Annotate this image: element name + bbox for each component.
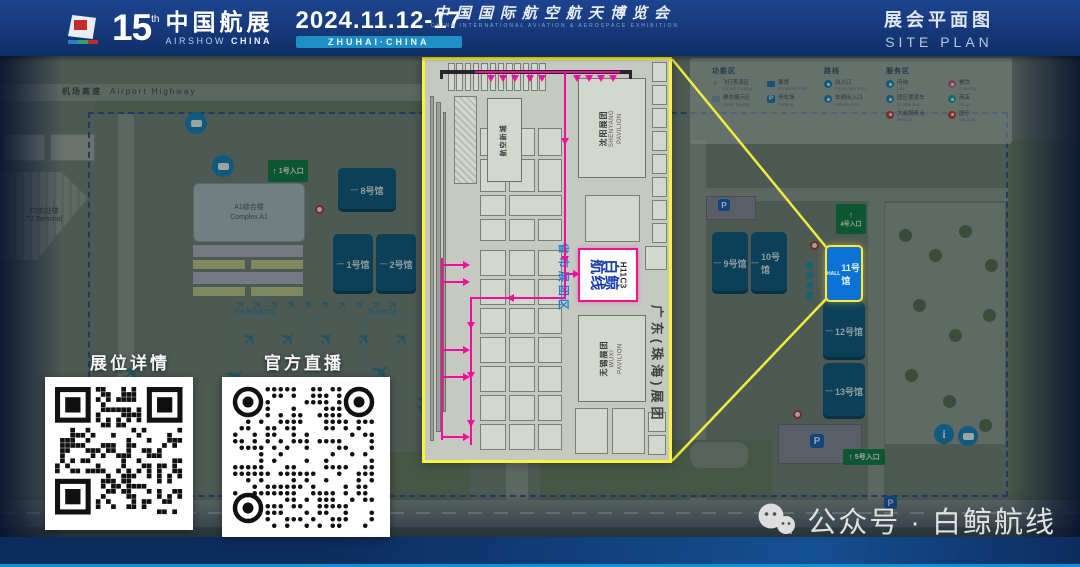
gate-strip bbox=[193, 272, 303, 284]
legend-item-en: Service bbox=[897, 117, 925, 122]
tree-icon bbox=[985, 259, 998, 272]
watermark-text: 公众号 · 白鲸航线 bbox=[807, 499, 1056, 541]
route-arrow-right bbox=[573, 270, 580, 278]
booth-box bbox=[652, 200, 667, 220]
entrance-label: 4号入口 bbox=[840, 222, 861, 228]
zone-label-guangdong-zhuhai: 广东(珠海)展团 bbox=[646, 270, 666, 458]
legend-item-en: Shop bbox=[959, 102, 970, 107]
booth-box bbox=[480, 250, 506, 276]
hall-label: 11号馆 bbox=[841, 261, 861, 287]
booth-box bbox=[538, 159, 562, 192]
legend-item-cn: 停车场 bbox=[778, 95, 795, 101]
hall-block-12号馆: 一12号馆 bbox=[823, 302, 865, 360]
plane-icon: ✈ bbox=[712, 80, 719, 88]
legend-item: 车辆出入口Vehicle Entr. bbox=[824, 95, 886, 106]
booth-box bbox=[509, 424, 535, 450]
parking-icon: P bbox=[810, 434, 824, 448]
venue-badge: ZHUHAI·CHINA bbox=[296, 36, 462, 48]
route-line bbox=[475, 71, 620, 73]
arrow-up-icon: ↑ bbox=[272, 167, 277, 176]
route-arrow-down bbox=[561, 256, 569, 263]
qr-label-live-stream: 官方直播 bbox=[264, 349, 344, 374]
hall-dash-icon: 一 bbox=[713, 258, 721, 269]
hall-dash-icon: 一 bbox=[825, 386, 833, 397]
route-arrow-down bbox=[573, 75, 581, 82]
booth-box bbox=[585, 195, 640, 242]
entrance-badge-1号入口: ↑1号入口 bbox=[268, 160, 308, 182]
hall-label: 2号馆 bbox=[389, 258, 412, 271]
route-arrow-right bbox=[463, 433, 470, 441]
t2-terminal-label-cn: T2航站楼 bbox=[29, 208, 58, 215]
route-arrow-down bbox=[499, 75, 507, 82]
route-arrow-down bbox=[538, 75, 546, 82]
legend-item-en: Passenger Entr. bbox=[835, 86, 867, 91]
airshow-title-en2: CHINA bbox=[231, 36, 272, 46]
booth-box bbox=[480, 279, 506, 305]
circle-icon bbox=[886, 95, 894, 103]
site-plan-title-en: SITE PLAN bbox=[884, 34, 994, 50]
gate-label-strip bbox=[251, 287, 303, 296]
parking-icon: P bbox=[767, 95, 775, 103]
tree-icon bbox=[959, 225, 972, 238]
booth-box bbox=[652, 223, 667, 243]
hall-label: 1号馆 bbox=[346, 258, 369, 271]
square-icon bbox=[712, 96, 720, 102]
booth-box bbox=[652, 85, 667, 105]
route-line bbox=[441, 376, 465, 378]
route-arrow-down bbox=[585, 75, 593, 82]
legend-item: ✈飞行表演区Aircraft Display bbox=[712, 80, 761, 91]
booth-aviation-new-town: 航空新城 bbox=[487, 98, 522, 182]
site-plan-title-cn: 展会平面图 bbox=[884, 6, 994, 32]
gate-strip bbox=[193, 245, 303, 257]
legend-item: 大会服务点Service bbox=[886, 111, 942, 122]
route-arrow-down bbox=[609, 75, 617, 82]
booth-box bbox=[652, 131, 667, 151]
footer-banner-cn: 中国国际航空航天博览会 bbox=[431, 2, 679, 23]
tree-icon bbox=[979, 419, 992, 432]
legend-group-服务区: 服务区问询Info餐饮Catering园区摆渡车Shuttle Bus商店Sho… bbox=[886, 66, 1004, 122]
route-line bbox=[441, 436, 465, 438]
hall-block-1号馆: 一1号馆 bbox=[333, 234, 373, 294]
legend-item-cn: 园区摆渡车 bbox=[897, 95, 925, 101]
info-icon: i bbox=[934, 424, 954, 444]
booth-box bbox=[612, 408, 645, 454]
booth-box bbox=[480, 219, 506, 241]
legend-item-en: Shuttle Bus bbox=[897, 102, 925, 107]
facility-marker bbox=[806, 292, 813, 299]
route-arrow-down bbox=[467, 322, 475, 329]
tree-icon bbox=[913, 299, 926, 312]
booth-box bbox=[509, 366, 535, 392]
circle-icon bbox=[948, 95, 956, 103]
t2-terminal: T2航站楼 T2 Terminal bbox=[0, 172, 88, 260]
route-line bbox=[441, 281, 465, 283]
tree-icon bbox=[943, 395, 956, 408]
tree-icon bbox=[929, 249, 942, 262]
booth-highlight-whale-route: H11C3 白鲸 航线 bbox=[578, 248, 638, 302]
legend-item-en: Info bbox=[897, 86, 908, 91]
circle-icon bbox=[886, 111, 894, 119]
route-arrow-right bbox=[463, 278, 470, 286]
t2-terminal-label-en: T2 Terminal bbox=[26, 216, 62, 223]
legend-group-title: 服务区 bbox=[886, 66, 1004, 76]
legend-item-cn: 静态展示区 bbox=[723, 95, 751, 101]
circle-icon bbox=[948, 111, 956, 119]
gate-label-strip bbox=[251, 260, 303, 269]
hall-dash-icon: 一 bbox=[350, 185, 358, 196]
legend-item-en: Exhibition Hall bbox=[778, 86, 807, 91]
circle-icon bbox=[824, 95, 832, 103]
legend-item-en: Vehicle Entr. bbox=[835, 102, 863, 107]
legend-item-en: Static Display bbox=[723, 102, 751, 107]
legend-item: 出入口Passenger Entr. bbox=[824, 80, 886, 91]
airport-highway-label: 机场高速Airport Highway bbox=[62, 86, 196, 97]
legend-item-en: Medical bbox=[959, 117, 975, 122]
hall-block-10号馆: 一10号馆 bbox=[751, 232, 787, 294]
booth-box bbox=[538, 337, 562, 363]
booth-box bbox=[652, 177, 667, 197]
booth-box bbox=[538, 395, 562, 421]
qr-label-booth-details: 展位详情 bbox=[90, 349, 170, 374]
square-icon bbox=[767, 81, 775, 87]
legend-item: 静态展示区Static Display bbox=[712, 95, 761, 106]
route-arrow-down bbox=[511, 75, 519, 82]
legend-group-功能区: 功能区✈飞行表演区Aircraft Display展馆Exhibition Ha… bbox=[712, 66, 816, 107]
entrance-label: 5号入口 bbox=[855, 454, 880, 461]
edition-number: 15 th bbox=[112, 11, 160, 44]
booth-box bbox=[652, 108, 667, 128]
park-area bbox=[884, 202, 1006, 445]
hall-label: 12号馆 bbox=[835, 325, 863, 338]
route-arrow-down bbox=[526, 75, 534, 82]
hall-block-11号馆: HALL11号馆 bbox=[825, 245, 863, 302]
service-point-icon bbox=[793, 410, 802, 419]
footer-banner: 中国国际航空航天博览会 CHINA INTERNATIONAL AVIATION… bbox=[431, 2, 679, 29]
wuxi-label-cn: 无锡展团 bbox=[600, 341, 610, 377]
tree-icon bbox=[899, 229, 912, 242]
tree-icon bbox=[949, 329, 962, 342]
complex-a1-label-cn: A1综合楼 bbox=[234, 204, 264, 211]
service-point-icon bbox=[810, 241, 819, 250]
booth-box bbox=[480, 366, 506, 392]
hall-dash-icon: 一 bbox=[336, 259, 344, 270]
entrance-label: 1号入口 bbox=[279, 168, 304, 175]
gate-label-strip bbox=[193, 287, 245, 296]
hall11-detail-inset: 沈阳展团 SHENYANG PAVILION 航空新城 无锡展团 WUXI PA… bbox=[422, 57, 672, 463]
lawn bbox=[1008, 140, 1080, 500]
booth-wuxi-pavilion: 无锡展团 WUXI PAVILION bbox=[578, 315, 646, 402]
hall-dash-icon: 一 bbox=[751, 258, 759, 269]
booth-box bbox=[480, 195, 506, 216]
route-line bbox=[564, 73, 566, 299]
legend-item: 问询Info bbox=[886, 80, 942, 91]
legend-item: 餐饮Catering bbox=[948, 80, 1004, 91]
legend-item: 医疗Medical bbox=[948, 111, 1004, 122]
bus-glyph bbox=[191, 120, 202, 127]
booth-shenyang-pavilion: 沈阳展团 SHENYANG PAVILION bbox=[578, 78, 646, 178]
legend-item-cn: 车辆出入口 bbox=[835, 95, 863, 101]
wechat-icon bbox=[756, 502, 798, 538]
parking-icon: P bbox=[718, 199, 730, 211]
arrow-up-icon: ↑ bbox=[848, 453, 853, 462]
route-arrow-down bbox=[487, 75, 495, 82]
booth-box bbox=[645, 246, 667, 270]
booth-box bbox=[448, 63, 455, 91]
airshow-title: 中国航展 AIRSHOW CHINA bbox=[166, 11, 274, 46]
airshow-logo-icon bbox=[66, 9, 102, 47]
legend-item: 园区摆渡车Shuttle Bus bbox=[886, 95, 942, 106]
route-line bbox=[470, 297, 566, 299]
booth-box bbox=[575, 408, 608, 454]
circle-icon bbox=[886, 80, 894, 88]
footer-banner-en: CHINA INTERNATIONAL AVIATION & AEROSPACE… bbox=[431, 23, 679, 29]
route-arrow-right bbox=[463, 261, 470, 269]
wuxi-label-en1: WUXI bbox=[610, 341, 618, 377]
hall-block-13号馆: 一13号馆 bbox=[823, 363, 865, 419]
legend-group-title: 功能区 bbox=[712, 66, 816, 76]
booth-box bbox=[538, 366, 562, 392]
legend-item: P停车场Parking bbox=[767, 95, 816, 106]
hall-prefix: HALL bbox=[827, 271, 840, 277]
legend-item: 展馆Exhibition Hall bbox=[767, 80, 816, 91]
legend-group-title: 路线 bbox=[824, 66, 886, 76]
tree-icon bbox=[905, 369, 918, 382]
complex-a1-building: A1综合楼 Complex A1 bbox=[193, 183, 305, 242]
booth-box bbox=[509, 395, 535, 421]
booth-box bbox=[652, 62, 667, 82]
airshow-title-en1: AIRSHOW bbox=[166, 36, 227, 46]
booth-box bbox=[480, 337, 506, 363]
site-plan-title: 展会平面图 SITE PLAN bbox=[884, 6, 994, 50]
service-point-icon bbox=[315, 205, 324, 214]
booth-box bbox=[480, 308, 506, 334]
hall-dash-icon: 一 bbox=[825, 326, 833, 337]
shenyang-label-cn: 沈阳展团 bbox=[599, 109, 609, 146]
booth-box bbox=[480, 395, 506, 421]
zone-label-provincial: 省市展团区 bbox=[553, 228, 571, 328]
booth-box bbox=[509, 219, 535, 241]
booth-box bbox=[509, 195, 562, 216]
entrance-badge-4号入口: ↑4号入口 bbox=[836, 204, 866, 234]
booth-box bbox=[509, 308, 535, 334]
legend-item: 商店Shop bbox=[948, 95, 1004, 106]
airshow-title-cn: 中国航展 bbox=[166, 11, 274, 34]
hall-label: 9号馆 bbox=[723, 257, 746, 270]
booth-box bbox=[538, 128, 562, 156]
facility-marker bbox=[806, 262, 813, 269]
booth-box bbox=[454, 96, 477, 184]
gate-label-strip bbox=[193, 260, 245, 269]
circle-icon bbox=[824, 80, 832, 88]
footer-bar bbox=[0, 537, 1080, 567]
bus-glyph bbox=[218, 163, 229, 170]
building bbox=[3, 134, 45, 161]
hall-block-2号馆: 一2号馆 bbox=[376, 234, 416, 294]
airshow-site-plan-poster: 机场高速Airport Highway T2航站楼 T2 Terminal A1… bbox=[0, 0, 1080, 567]
legend-item-en: Aircraft Display bbox=[722, 86, 752, 91]
hall-label: 8号馆 bbox=[360, 184, 383, 197]
booth-box bbox=[480, 424, 506, 450]
entrance-badge-5号入口: ↑5号入口 bbox=[843, 449, 885, 465]
whale-name-line2: 航线 bbox=[589, 259, 603, 291]
qr-code-live-stream bbox=[222, 377, 390, 537]
bus-glyph bbox=[963, 433, 974, 440]
booth-box bbox=[430, 96, 434, 441]
route-line bbox=[441, 349, 465, 351]
route-line bbox=[441, 264, 465, 266]
hall-label: 10号馆 bbox=[761, 250, 787, 276]
legend-group-路线: 路线出入口Passenger Entr.车辆出入口Vehicle Entr. bbox=[824, 66, 886, 107]
hall-dash-icon: 一 bbox=[379, 259, 387, 270]
legend-item-en: Parking bbox=[778, 102, 795, 107]
aviation-new-town-label: 航空新城 bbox=[500, 124, 509, 156]
hall-block-8号馆: 一8号馆 bbox=[338, 168, 396, 212]
facility-marker bbox=[806, 282, 813, 289]
complex-a1-label-en: Complex A1 bbox=[230, 214, 268, 221]
facility-marker bbox=[806, 272, 813, 279]
booth-box bbox=[473, 63, 480, 91]
booth-box bbox=[443, 112, 446, 412]
booth-box bbox=[509, 250, 535, 276]
watermark-account: 公众号 · 白鲸航线 bbox=[756, 499, 1056, 541]
booth-box bbox=[652, 154, 667, 174]
hall-block-9号馆: 一9号馆 bbox=[712, 232, 748, 294]
route-arrow-down bbox=[597, 75, 605, 82]
bus-stop-icon bbox=[958, 426, 978, 446]
circle-icon bbox=[948, 80, 956, 88]
tree-icon bbox=[983, 309, 996, 322]
legend-item-cn: 商店 bbox=[959, 95, 970, 101]
booth-box bbox=[456, 63, 463, 91]
airport-highway-label-cn: 机场高速 bbox=[62, 87, 102, 96]
route-arrow-right bbox=[463, 373, 470, 381]
airport-highway-label-en: Airport Highway bbox=[110, 87, 196, 96]
legend-item-en: Catering bbox=[959, 86, 976, 91]
wuxi-label-en2: PAVILION bbox=[617, 341, 625, 377]
booth-box bbox=[538, 424, 562, 450]
route-arrow-down bbox=[467, 420, 475, 427]
bus-stop-icon bbox=[212, 155, 234, 177]
route-arrow-right bbox=[463, 346, 470, 354]
route-arrow-down bbox=[561, 138, 569, 145]
hall-label: 13号馆 bbox=[835, 385, 863, 398]
route-arrow-left bbox=[507, 294, 514, 302]
booth-box bbox=[509, 337, 535, 363]
bus-stop-icon bbox=[185, 112, 207, 134]
arrow-up-icon: ↑ bbox=[849, 211, 854, 220]
shenyang-label-en2: PAVILION bbox=[617, 109, 625, 146]
shenyang-label-en1: SHENYANG bbox=[609, 109, 617, 146]
qr-code-booth-details bbox=[45, 377, 193, 530]
booth-box bbox=[465, 63, 472, 91]
map-legend: 功能区✈飞行表演区Aircraft Display展馆Exhibition Ha… bbox=[690, 58, 1012, 144]
